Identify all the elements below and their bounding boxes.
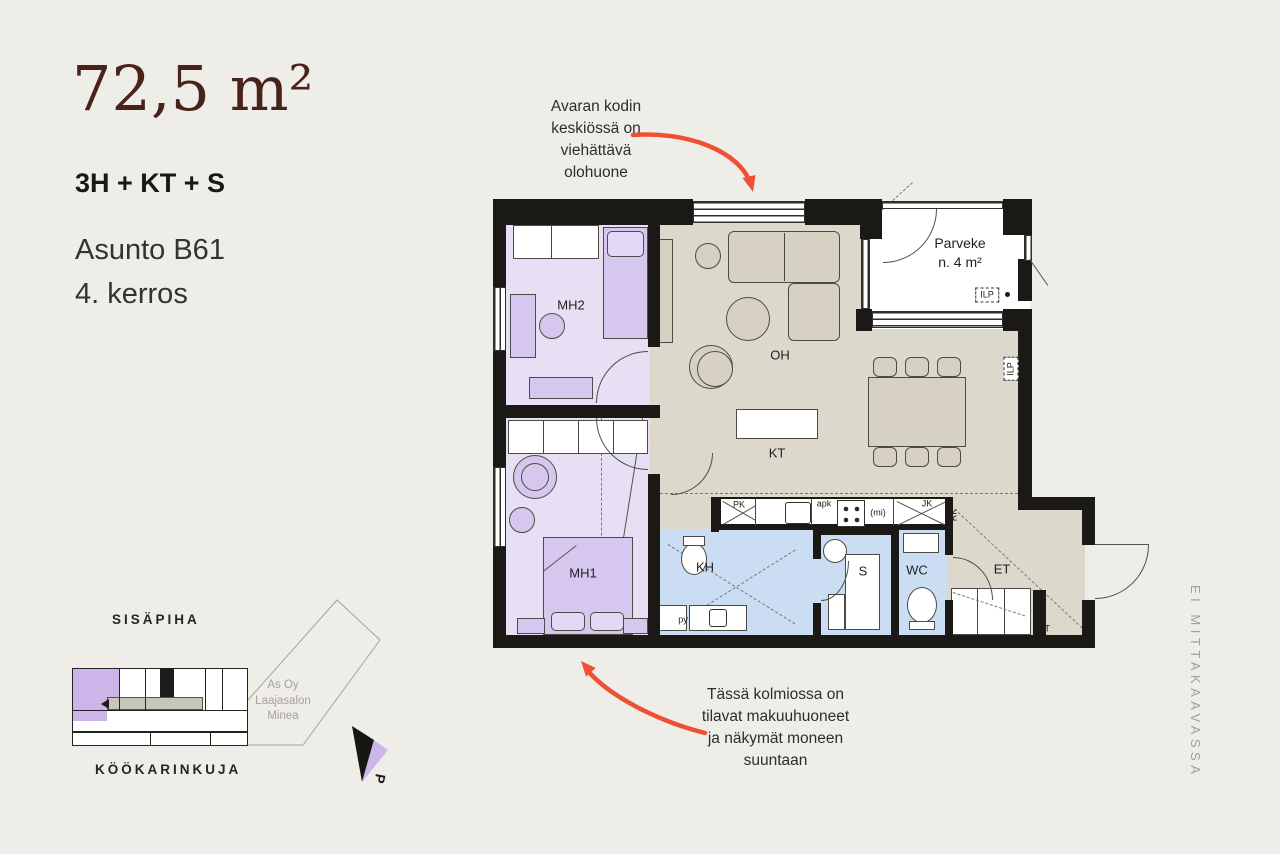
siteplan-corridor [107, 697, 203, 710]
page-title: 72,5 m² [72, 52, 313, 125]
siteplan-street-label: KÖÖKARINKUJA [95, 762, 241, 777]
counter-divider [755, 499, 756, 526]
window [493, 287, 506, 351]
kitchen-island [736, 409, 818, 439]
wall [648, 474, 660, 635]
sauna-bench [828, 594, 845, 630]
siteplan-wall [73, 710, 247, 711]
armchair-cushion [697, 351, 733, 387]
coffee-table [726, 297, 770, 341]
kitchen-sink [785, 502, 811, 524]
appliance-label-ilp-wall: ILP [1004, 357, 1019, 381]
dining-chair [873, 447, 897, 467]
ilp-dot [1005, 292, 1010, 297]
room-label-wc: WC [906, 564, 928, 577]
wall [1018, 330, 1032, 500]
appliance-label-ilp: ILP [975, 288, 999, 303]
siteplan-company-name: As Oy Laajasalon Minea [238, 678, 328, 725]
pillow [607, 231, 644, 257]
apartment-layout-code: 3H + KT + S [75, 168, 225, 199]
chair [539, 313, 565, 339]
pillow [551, 612, 585, 631]
bathroom-sink [709, 609, 727, 627]
wardrobe-divider [543, 420, 544, 454]
wall [945, 600, 953, 635]
room-label-mh2: MH2 [557, 299, 584, 312]
balcony-wall-window [861, 239, 870, 309]
wall [945, 529, 953, 555]
counter-divider [811, 499, 812, 526]
entry-door-leaf [1095, 544, 1149, 545]
wall [648, 199, 660, 347]
wall [493, 635, 1095, 648]
siteplan-entry-arrow-icon [101, 699, 109, 709]
wall [1082, 510, 1095, 545]
stove-icon [837, 500, 865, 527]
stool [509, 507, 535, 533]
siteplan-wall [145, 669, 146, 710]
room-label-parveke-area: n. 4 m² [938, 255, 982, 269]
siteplan-company-line: Laajasalon [238, 694, 328, 710]
side-table [695, 243, 721, 269]
dresser [529, 377, 593, 399]
compass-north-label: P [371, 773, 388, 785]
siteplan-wall [222, 669, 223, 710]
floorplan-page: { "header": { "area": "72,5 m²", "layout… [0, 0, 1280, 854]
annotation-arrow-top-icon [625, 115, 770, 200]
closet-divider [551, 225, 552, 259]
appliance-label-pk: PK [733, 501, 745, 510]
counter-divider [893, 499, 894, 526]
appliance-label-mi: (mi) [870, 509, 886, 518]
toilet-tank [909, 621, 935, 630]
wc-sink [903, 533, 939, 553]
room-label-kt: KT [769, 447, 786, 460]
siteplan-company-line: As Oy [238, 678, 328, 694]
appliance-label-rk: RK [950, 509, 959, 522]
siteplan-building-row [72, 732, 248, 746]
nightstand [623, 618, 648, 634]
room-label-oh: OH [770, 349, 790, 362]
balcony-window [882, 201, 1003, 209]
toilet [907, 587, 937, 623]
apartment-number: Asunto B61 [75, 234, 225, 267]
wall [493, 547, 506, 635]
nightstand [517, 618, 545, 634]
wall [493, 405, 660, 418]
dining-table [868, 377, 966, 447]
room-label-kh: KH [696, 561, 714, 574]
sauna-stove [823, 539, 847, 563]
compass-icon: P [340, 722, 396, 792]
balcony-pillar [856, 309, 872, 331]
dining-chair [905, 447, 929, 467]
wall [493, 225, 506, 287]
siteplan-highlight-unit [73, 669, 107, 721]
floor-plan: MH2 MH1 OH KT KH S WC ET Parveke n. 4 m²… [493, 199, 1097, 650]
sofa-chaise [788, 283, 840, 341]
balcony-pillar [860, 199, 882, 239]
guide-line [650, 493, 1018, 494]
dining-chair [937, 447, 961, 467]
dining-chair [873, 357, 897, 377]
annotation-arrow-bottom-icon [565, 648, 715, 743]
wall [813, 603, 821, 635]
appliance-label-jt: JT [1040, 625, 1050, 634]
siteplan-wall [205, 669, 206, 710]
balcony-pillar [1003, 199, 1032, 235]
siteplan-wall [210, 733, 211, 745]
room-label-mh1: MH1 [569, 567, 596, 580]
wall [813, 529, 899, 535]
scale-note: EI MITTAKAAVASSA [1188, 585, 1203, 778]
sofa-cushion-divider [784, 233, 785, 281]
siteplan-wall [119, 669, 120, 710]
dining-chair [905, 357, 929, 377]
annotation-bottom-line: suuntaan [648, 750, 903, 772]
closet [513, 225, 599, 259]
siteplan-wall [150, 733, 151, 745]
wall [891, 529, 899, 635]
siteplan-courtyard-label: SISÄPIHA [112, 612, 200, 627]
kitchen-counter [719, 497, 947, 530]
balcony-pillar [1018, 259, 1032, 301]
entry-door-arc [1095, 545, 1149, 599]
room-label-parveke: Parveke [934, 236, 985, 250]
wardrobe-divider [1004, 588, 1005, 635]
room-label-et: ET [994, 563, 1011, 576]
armchair-cushion [521, 463, 549, 491]
appliance-label-jk: JK [922, 500, 933, 509]
wall [711, 497, 719, 532]
window [693, 201, 805, 223]
wall [1018, 497, 1095, 510]
wall [493, 199, 693, 225]
window [493, 467, 506, 547]
wall [1082, 600, 1095, 635]
appliance-label-py: py [678, 616, 688, 625]
room-label-sauna: S [859, 565, 868, 578]
balcony-window [1024, 235, 1032, 261]
apartment-floor: 4. kerros [75, 278, 188, 311]
siteplan-company-line: Minea [238, 709, 328, 725]
toilet-tank [683, 536, 705, 546]
dining-chair [937, 357, 961, 377]
balcony-pillar [1003, 309, 1032, 331]
balcony-sliding-door [872, 311, 1003, 328]
balcony-door-flap [1029, 259, 1048, 286]
wardrobe-divider [578, 420, 579, 454]
pillow [590, 612, 624, 631]
appliance-label-apk: apk [817, 500, 832, 509]
desk [510, 294, 536, 358]
